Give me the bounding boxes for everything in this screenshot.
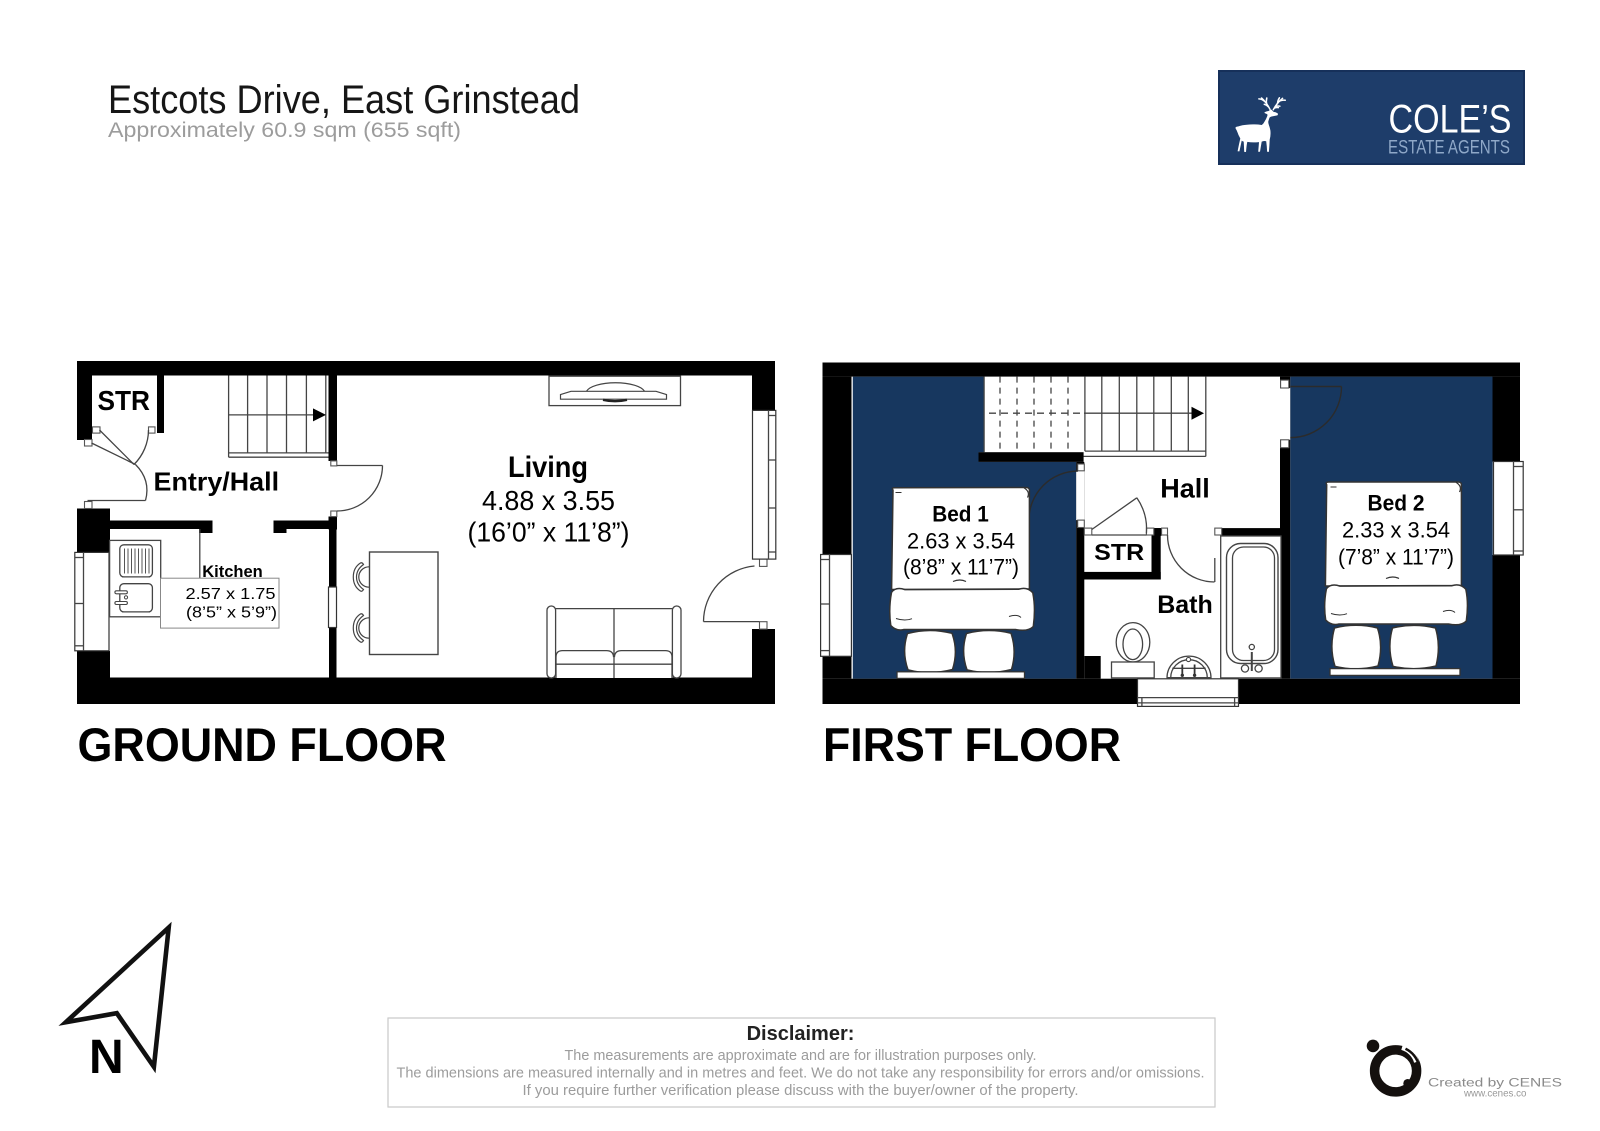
svg-text:COLE’S: COLE’S — [1389, 98, 1512, 142]
svg-text:(8’8” x 11’7”): (8’8” x 11’7”) — [903, 555, 1019, 580]
svg-text:Kitchen: Kitchen — [202, 563, 263, 581]
svg-text:4.88 x 3.55: 4.88 x 3.55 — [482, 485, 615, 516]
svg-text:FIRST FLOOR: FIRST FLOOR — [823, 718, 1121, 771]
svg-text:ESTATE AGENTS: ESTATE AGENTS — [1388, 138, 1510, 159]
svg-text:Approximately 60.9 sqm (655 sq: Approximately 60.9 sqm (655 sqft) — [108, 119, 461, 142]
svg-text:www.cenes.co: www.cenes.co — [1463, 1088, 1527, 1100]
svg-text:(16’0” x 11’8”): (16’0” x 11’8”) — [468, 517, 630, 548]
svg-text:N: N — [89, 1031, 124, 1084]
svg-text:Bath: Bath — [1157, 591, 1213, 619]
svg-text:Disclaimer:: Disclaimer: — [747, 1023, 855, 1045]
svg-text:The dimensions are measured in: The dimensions are measured internally a… — [397, 1066, 1205, 1082]
svg-text:Entry/Hall: Entry/Hall — [154, 467, 280, 497]
svg-text:Bed 1: Bed 1 — [932, 502, 989, 527]
svg-text:2.33 x 3.54: 2.33 x 3.54 — [1342, 518, 1450, 543]
svg-text:If you require further verific: If you require further verification plea… — [523, 1083, 1079, 1099]
svg-text:The measurements are approxima: The measurements are approximate and are… — [565, 1048, 1037, 1064]
svg-text:Living: Living — [508, 451, 588, 484]
svg-text:(8’5” x 5’9”): (8’5” x 5’9”) — [186, 605, 277, 622]
svg-text:2.57 x 1.75: 2.57 x 1.75 — [186, 586, 276, 603]
svg-text:Estcots Drive, East Grinstead: Estcots Drive, East Grinstead — [108, 78, 580, 122]
svg-text:(7’8” x 11’7”): (7’8” x 11’7”) — [1338, 545, 1454, 570]
svg-text:GROUND FLOOR: GROUND FLOOR — [78, 718, 447, 771]
svg-text:STR: STR — [97, 385, 150, 416]
svg-text:2.63 x 3.54: 2.63 x 3.54 — [907, 529, 1015, 554]
svg-text:Bed 2: Bed 2 — [1368, 491, 1425, 516]
svg-text:STR: STR — [1094, 539, 1144, 565]
svg-text:Hall: Hall — [1160, 474, 1210, 504]
